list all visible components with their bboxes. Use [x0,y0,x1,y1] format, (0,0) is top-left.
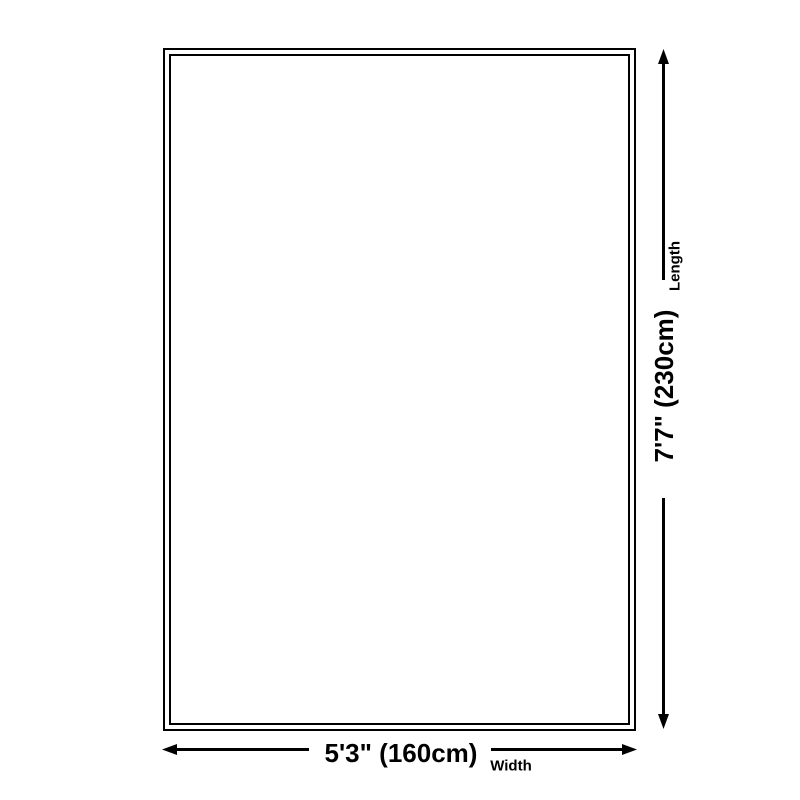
width-value: 5'3" (160cm) [325,740,478,766]
dimension-arrows [0,0,800,800]
length-label: Length [668,241,683,291]
arrowhead-right-icon [622,744,637,755]
length-value: 7'7" (230cm) [651,310,677,463]
arrowhead-down-icon [658,714,669,729]
width-label: Width [490,759,532,774]
dimension-diagram: 7'7" (230cm) Length 5'3" (160cm) Width [0,0,800,800]
